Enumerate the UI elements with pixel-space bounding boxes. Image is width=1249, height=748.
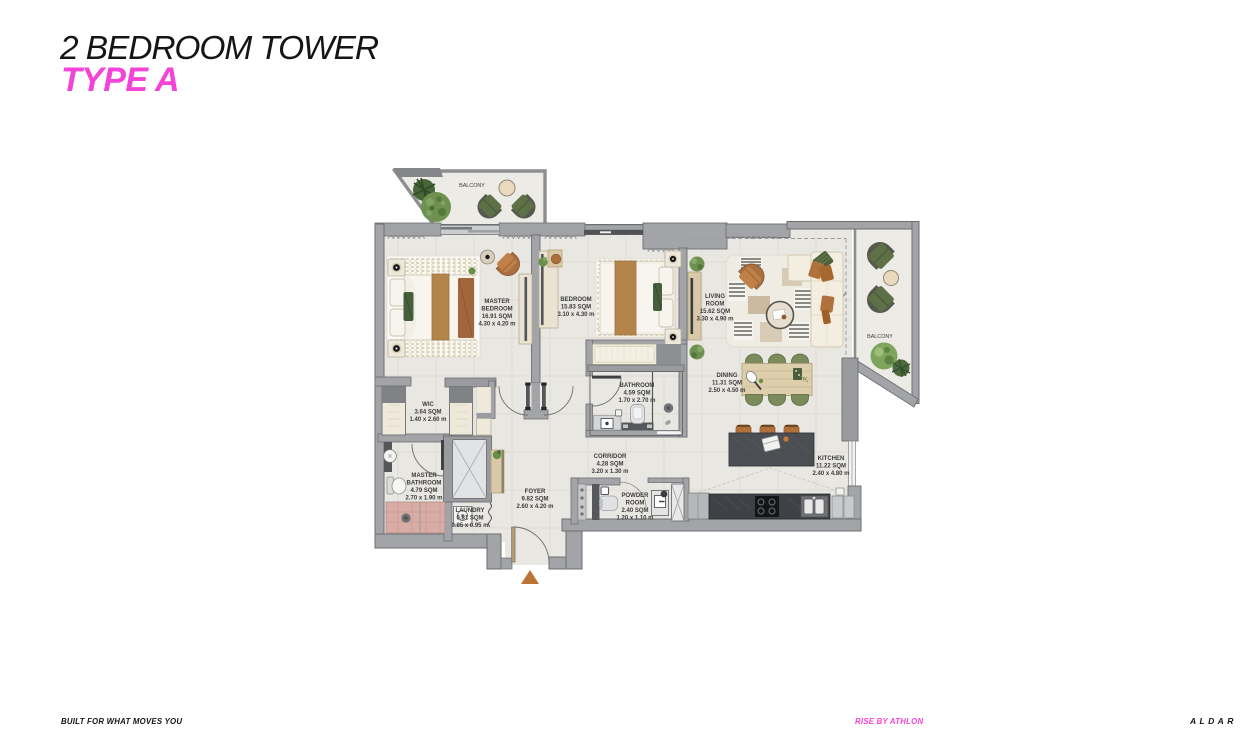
svg-text:3.30 x 4.90 m: 3.30 x 4.90 m xyxy=(696,317,733,323)
svg-text:4.59 SQM: 4.59 SQM xyxy=(623,391,650,397)
svg-text:BATHROOM: BATHROOM xyxy=(407,481,442,487)
svg-text:BEDROOM: BEDROOM xyxy=(560,297,591,303)
svg-text:BATHROOM: BATHROOM xyxy=(620,383,655,389)
svg-text:LIVING: LIVING xyxy=(705,294,725,300)
svg-text:11.22 SQM: 11.22 SQM xyxy=(816,464,846,470)
svg-text:16.91 SQM: 16.91 SQM xyxy=(482,314,512,320)
svg-text:1.70 x 2.70 m: 1.70 x 2.70 m xyxy=(618,398,655,404)
svg-text:9.82 SQM: 9.82 SQM xyxy=(521,497,548,503)
svg-text:3.20 x 1.30 m: 3.20 x 1.30 m xyxy=(591,469,628,475)
svg-text:CORRIDOR: CORRIDOR xyxy=(594,454,627,460)
svg-text:15.83 SQM: 15.83 SQM xyxy=(561,305,591,311)
svg-text:4.30 x 4.20 m: 4.30 x 4.20 m xyxy=(478,322,515,328)
svg-text:2.50 x 4.50 m: 2.50 x 4.50 m xyxy=(708,388,745,394)
svg-text:FOYER: FOYER xyxy=(525,489,546,495)
svg-text:ALDAR: ALDAR xyxy=(1189,716,1237,726)
svg-text:0.81 SQM: 0.81 SQM xyxy=(456,516,483,522)
svg-text:BALCONY: BALCONY xyxy=(459,183,485,189)
svg-text:KITCHEN: KITCHEN xyxy=(818,456,845,462)
svg-text:TYPE A: TYPE A xyxy=(61,61,179,99)
svg-text:11.31 SQM: 11.31 SQM xyxy=(712,381,742,387)
svg-text:2.60 x 4.20 m: 2.60 x 4.20 m xyxy=(516,504,553,510)
svg-text:MASTER: MASTER xyxy=(411,473,437,479)
svg-text:0.85 x 0.95 m: 0.85 x 0.95 m xyxy=(451,523,488,529)
svg-text:1.20 x 1.10 m: 1.20 x 1.10 m xyxy=(616,516,653,522)
svg-text:LAUNDRY: LAUNDRY xyxy=(455,508,484,514)
svg-text:BEDROOM: BEDROOM xyxy=(481,307,512,313)
svg-text:2.40 x 4.80 m: 2.40 x 4.80 m xyxy=(812,471,849,477)
svg-text:3.64 SQM: 3.64 SQM xyxy=(414,410,441,416)
svg-text:WIC: WIC xyxy=(422,402,434,408)
svg-text:2.40 SQM: 2.40 SQM xyxy=(621,508,648,514)
svg-text:BUILT FOR WHAT MOVES YOU: BUILT FOR WHAT MOVES YOU xyxy=(61,717,182,726)
svg-text:RISE BY ATHLON: RISE BY ATHLON xyxy=(855,717,923,726)
svg-text:3.10 x 4.30 m: 3.10 x 4.30 m xyxy=(557,312,594,318)
svg-text:ROOM: ROOM xyxy=(626,501,645,507)
svg-text:4.79 SQM: 4.79 SQM xyxy=(410,488,437,494)
svg-text:MASTER: MASTER xyxy=(484,299,510,305)
svg-text:1.40 x 2.60 m: 1.40 x 2.60 m xyxy=(409,417,446,423)
svg-text:2.70 x 1.90 m: 2.70 x 1.90 m xyxy=(405,496,442,502)
svg-text:ROOM: ROOM xyxy=(706,302,725,308)
svg-text:POWDER: POWDER xyxy=(622,493,650,499)
svg-text:4.28 SQM: 4.28 SQM xyxy=(596,462,623,468)
svg-text:15.62 SQM: 15.62 SQM xyxy=(700,309,730,315)
svg-text:DINING: DINING xyxy=(717,373,738,379)
svg-text:BALCONY: BALCONY xyxy=(867,334,893,340)
